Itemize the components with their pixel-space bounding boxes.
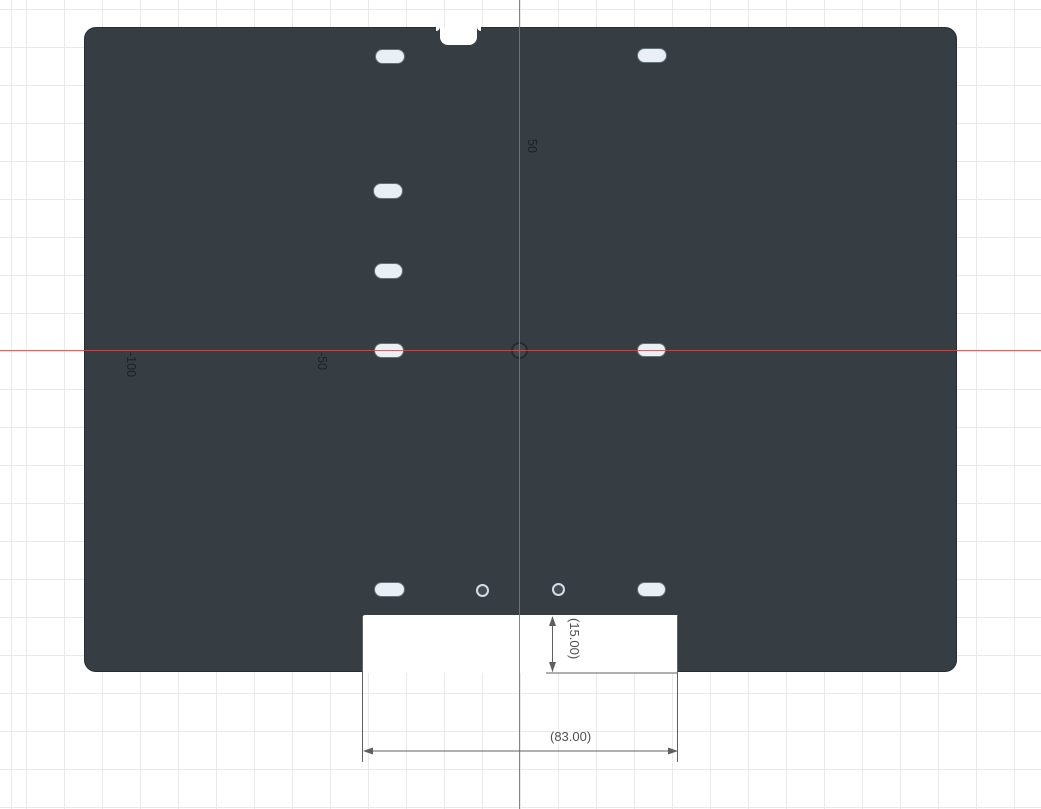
dimension-83-label[interactable]: (83.00) xyxy=(550,729,591,744)
dimension-83-lines[interactable] xyxy=(363,616,679,762)
dimension-15-label[interactable]: (15.00) xyxy=(567,618,582,659)
dimension-graphics xyxy=(0,0,1041,809)
dimension-15-lines[interactable] xyxy=(546,616,678,673)
sketch-viewport: 50 -50 -100 (15.00) (83.00) xyxy=(0,0,1041,809)
